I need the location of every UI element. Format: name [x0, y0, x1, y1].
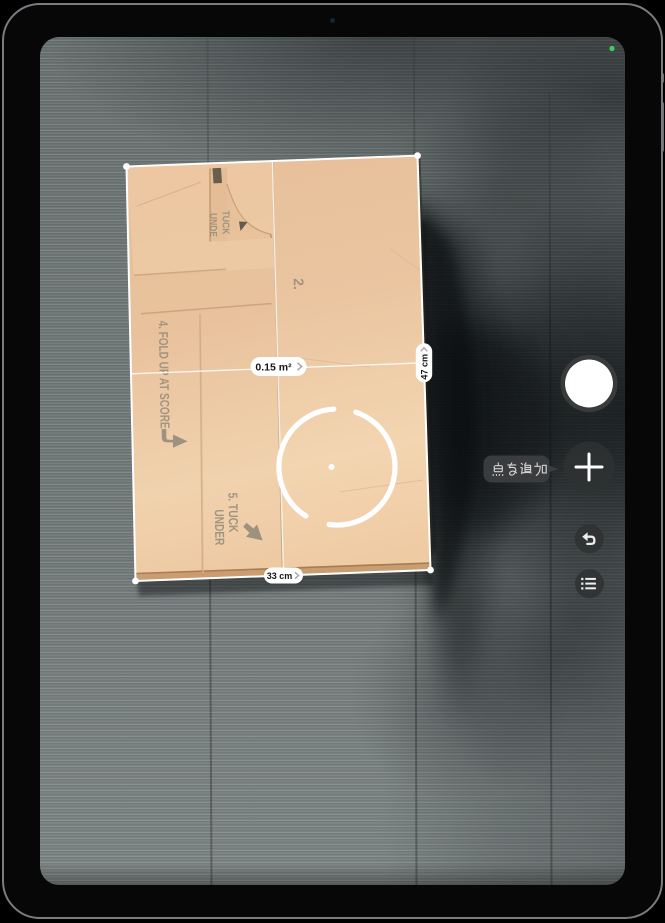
- svg-text:47 cm: 47 cm: [419, 354, 429, 380]
- svg-text:0.15 m²: 0.15 m²: [255, 361, 292, 373]
- svg-text:TUCK: TUCK: [220, 211, 231, 236]
- svg-text:UNDER: UNDER: [212, 509, 228, 546]
- svg-text:UNDE: UNDE: [207, 213, 218, 237]
- svg-text:2.: 2.: [291, 278, 307, 290]
- svg-text:4. FOLD UP AT SCORE: 4. FOLD UP AT SCORE: [156, 320, 173, 428]
- svg-text:33 cm: 33 cm: [267, 571, 293, 581]
